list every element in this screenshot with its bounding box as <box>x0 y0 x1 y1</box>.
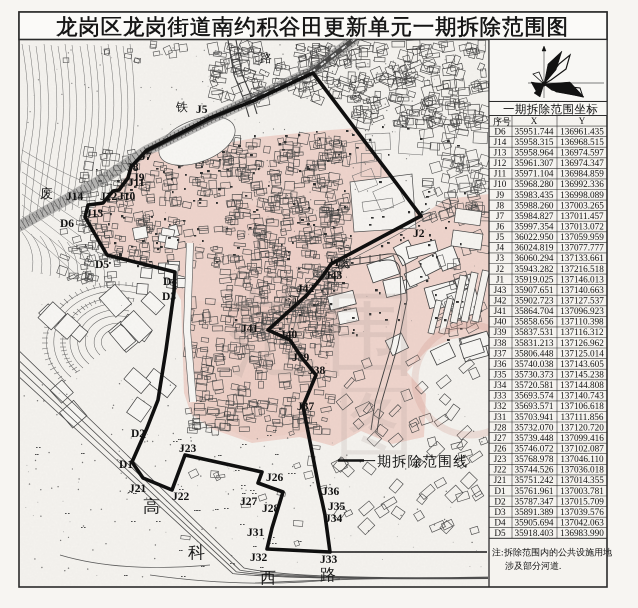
svg-text:35730.373: 35730.373 <box>514 370 553 380</box>
svg-text:Y: Y <box>579 116 586 126</box>
svg-text:J14: J14 <box>66 191 84 203</box>
svg-text:D3: D3 <box>162 291 176 303</box>
svg-text:J5: J5 <box>496 232 505 242</box>
svg-text:35761.961: 35761.961 <box>514 486 553 496</box>
svg-text:J38: J38 <box>494 338 507 348</box>
svg-text:J8: J8 <box>496 200 505 210</box>
svg-text:J2: J2 <box>496 264 505 274</box>
svg-text:137096.923: 137096.923 <box>560 306 604 316</box>
svg-text:35806.448: 35806.448 <box>514 348 553 358</box>
svg-text:J34: J34 <box>325 513 343 525</box>
svg-text:137133.661: 137133.661 <box>560 253 604 263</box>
svg-text:J14: J14 <box>494 137 507 147</box>
svg-text:J39: J39 <box>292 352 310 364</box>
svg-text:J26: J26 <box>494 444 507 454</box>
svg-text:J27: J27 <box>240 496 258 508</box>
svg-text:J12: J12 <box>100 191 118 203</box>
svg-text:36022.950: 36022.950 <box>514 232 553 242</box>
svg-text:137125.014: 137125.014 <box>560 348 604 358</box>
svg-text:J23: J23 <box>179 443 197 455</box>
svg-text:J7: J7 <box>496 211 505 221</box>
svg-text:137120.720: 137120.720 <box>560 422 604 432</box>
svg-text:35902.723: 35902.723 <box>514 296 553 306</box>
svg-text:J36: J36 <box>322 486 340 498</box>
svg-text:D3: D3 <box>494 507 506 517</box>
svg-text:35997.354: 35997.354 <box>514 222 553 232</box>
svg-text:35739.448: 35739.448 <box>514 433 553 443</box>
svg-text:J22: J22 <box>494 465 507 475</box>
svg-text:35891.389: 35891.389 <box>514 507 553 517</box>
svg-text:J6: J6 <box>496 222 505 232</box>
svg-text:35831.213: 35831.213 <box>514 338 553 348</box>
svg-text::: : <box>501 547 504 557</box>
svg-text:137015.709: 137015.709 <box>560 496 604 506</box>
svg-text:J8: J8 <box>127 162 139 174</box>
svg-text:J37: J37 <box>297 401 315 413</box>
svg-text:D5: D5 <box>494 528 506 538</box>
svg-text:J35: J35 <box>328 501 346 513</box>
svg-text:137011.457: 137011.457 <box>560 211 604 221</box>
svg-text:35740.038: 35740.038 <box>514 359 553 369</box>
svg-text:36024.819: 36024.819 <box>514 243 553 253</box>
svg-text:35958.964: 35958.964 <box>514 148 553 158</box>
svg-text:J12: J12 <box>494 158 507 168</box>
svg-text:35837.531: 35837.531 <box>514 327 553 337</box>
svg-text:J31: J31 <box>247 527 265 539</box>
svg-text:J43: J43 <box>494 285 507 295</box>
svg-text:J42: J42 <box>297 283 315 295</box>
svg-text:J41: J41 <box>494 306 507 316</box>
svg-text:J1: J1 <box>496 274 505 284</box>
svg-text:J33: J33 <box>494 391 507 401</box>
svg-text:136974.347: 136974.347 <box>560 158 604 168</box>
svg-text:36060.294: 36060.294 <box>514 253 553 263</box>
svg-text:J38: J38 <box>308 365 326 377</box>
svg-text:35858.656: 35858.656 <box>514 317 553 327</box>
svg-text:J35: J35 <box>494 370 507 380</box>
svg-text:35693.574: 35693.574 <box>514 391 553 401</box>
svg-text:D4: D4 <box>163 276 177 288</box>
svg-text:D1: D1 <box>494 486 506 496</box>
svg-text:J21: J21 <box>129 483 147 495</box>
svg-text:137144.808: 137144.808 <box>560 380 604 390</box>
svg-text:137046.110: 137046.110 <box>560 454 604 464</box>
svg-text:137039.576: 137039.576 <box>560 507 604 517</box>
svg-text:137140.743: 137140.743 <box>560 391 604 401</box>
svg-text:136968.515: 136968.515 <box>560 137 604 147</box>
svg-text:137116.312: 137116.312 <box>560 327 604 337</box>
svg-text:137110.398: 137110.398 <box>560 317 604 327</box>
svg-text:J9: J9 <box>496 190 505 200</box>
svg-text:35919.025: 35919.025 <box>514 274 553 284</box>
svg-text:137102.087: 137102.087 <box>560 444 604 454</box>
svg-text:137099.416: 137099.416 <box>560 433 604 443</box>
svg-text:J31: J31 <box>494 412 507 422</box>
svg-text:J41: J41 <box>241 323 259 335</box>
svg-text:J3: J3 <box>496 253 505 263</box>
svg-text:J28: J28 <box>262 503 280 515</box>
svg-text:35968.280: 35968.280 <box>514 179 553 189</box>
svg-text:137003.781: 137003.781 <box>560 486 604 496</box>
svg-text:J10: J10 <box>494 179 507 189</box>
svg-text:35958.315: 35958.315 <box>514 137 553 147</box>
svg-text:35693.571: 35693.571 <box>514 401 553 411</box>
svg-text:137077.777: 137077.777 <box>560 243 604 253</box>
svg-text:J1: J1 <box>328 257 340 269</box>
svg-text:35984.827: 35984.827 <box>514 211 553 221</box>
svg-text:35907.651: 35907.651 <box>514 285 553 295</box>
svg-text:J10: J10 <box>118 191 136 203</box>
svg-text:137126.962: 137126.962 <box>560 338 604 348</box>
svg-text:J32: J32 <box>250 552 268 564</box>
svg-text:137036.018: 137036.018 <box>560 465 604 475</box>
svg-text:35943.282: 35943.282 <box>514 264 553 274</box>
svg-text:J42: J42 <box>494 296 507 306</box>
svg-text:137042.063: 137042.063 <box>560 518 604 528</box>
svg-text:J34: J34 <box>494 380 507 390</box>
svg-text:J27: J27 <box>494 433 507 443</box>
svg-text:35905.694: 35905.694 <box>514 518 553 528</box>
svg-text:136998.089: 136998.089 <box>560 190 604 200</box>
svg-text:J2: J2 <box>413 228 425 240</box>
svg-text:J28: J28 <box>494 422 507 432</box>
svg-text:137014.355: 137014.355 <box>560 475 604 485</box>
svg-text:136961.435: 136961.435 <box>560 126 604 136</box>
svg-text:J22: J22 <box>172 491 190 503</box>
svg-text:D2: D2 <box>494 496 506 506</box>
svg-text:136984.859: 136984.859 <box>560 169 604 179</box>
svg-text:137013.072: 137013.072 <box>560 222 604 232</box>
svg-text:J13: J13 <box>86 208 104 220</box>
svg-text:136992.336: 136992.336 <box>560 179 604 189</box>
svg-text:D2: D2 <box>131 428 145 440</box>
svg-text:137003.265: 137003.265 <box>560 200 604 210</box>
svg-text:J32: J32 <box>494 401 507 411</box>
svg-text:J40: J40 <box>280 329 298 341</box>
svg-text:J43: J43 <box>325 270 343 282</box>
svg-text:J13: J13 <box>494 148 507 158</box>
svg-text:J37: J37 <box>494 348 507 358</box>
svg-text:136974.597: 136974.597 <box>560 148 604 158</box>
svg-text:35983.435: 35983.435 <box>514 190 553 200</box>
svg-text:J21: J21 <box>494 475 507 485</box>
svg-text:35951.744: 35951.744 <box>514 126 553 136</box>
svg-text:J11: J11 <box>494 169 507 179</box>
svg-text:35746.072: 35746.072 <box>514 444 553 454</box>
svg-text:35971.104: 35971.104 <box>514 169 553 179</box>
svg-text:137111.856: 137111.856 <box>561 412 604 422</box>
svg-text:J40: J40 <box>494 317 507 327</box>
svg-text:J23: J23 <box>494 454 507 464</box>
svg-text:D6: D6 <box>494 126 506 136</box>
svg-text:J39: J39 <box>494 327 507 337</box>
svg-text:D4: D4 <box>494 518 506 528</box>
svg-text:D1: D1 <box>119 459 133 471</box>
svg-text:137127.537: 137127.537 <box>560 296 604 306</box>
svg-text:J36: J36 <box>494 359 507 369</box>
svg-text:D5: D5 <box>95 259 109 271</box>
svg-text:137140.663: 137140.663 <box>560 285 604 295</box>
svg-text:J4: J4 <box>496 243 505 253</box>
svg-text:136983.990: 136983.990 <box>560 528 604 538</box>
svg-text:D6: D6 <box>60 218 74 230</box>
svg-text:137106.618: 137106.618 <box>560 401 604 411</box>
svg-text:35918.403: 35918.403 <box>514 528 553 538</box>
svg-text:35732.070: 35732.070 <box>514 422 553 432</box>
svg-text:137145.238: 137145.238 <box>560 370 604 380</box>
svg-text:137146.013: 137146.013 <box>560 274 604 284</box>
svg-text:137143.605: 137143.605 <box>560 359 604 369</box>
svg-text:X: X <box>531 116 538 126</box>
svg-text:35787.347: 35787.347 <box>514 496 553 506</box>
svg-text:137059.959: 137059.959 <box>560 232 604 242</box>
svg-text:J33: J33 <box>320 554 338 566</box>
svg-text:35768.978: 35768.978 <box>514 454 553 464</box>
svg-text:137216.518: 137216.518 <box>560 264 604 274</box>
svg-text:35988.260: 35988.260 <box>514 200 553 210</box>
svg-text:35703.941: 35703.941 <box>514 412 553 422</box>
svg-text:J26: J26 <box>266 472 284 484</box>
svg-text:35751.242: 35751.242 <box>514 475 553 485</box>
svg-text:J5: J5 <box>196 104 208 116</box>
svg-text:35744.526: 35744.526 <box>514 465 553 475</box>
svg-text:J7: J7 <box>140 151 152 163</box>
svg-text:.: . <box>559 561 561 571</box>
svg-text:35864.704: 35864.704 <box>514 306 553 316</box>
svg-text:35720.581: 35720.581 <box>514 380 553 390</box>
svg-text:35961.307: 35961.307 <box>514 158 553 168</box>
